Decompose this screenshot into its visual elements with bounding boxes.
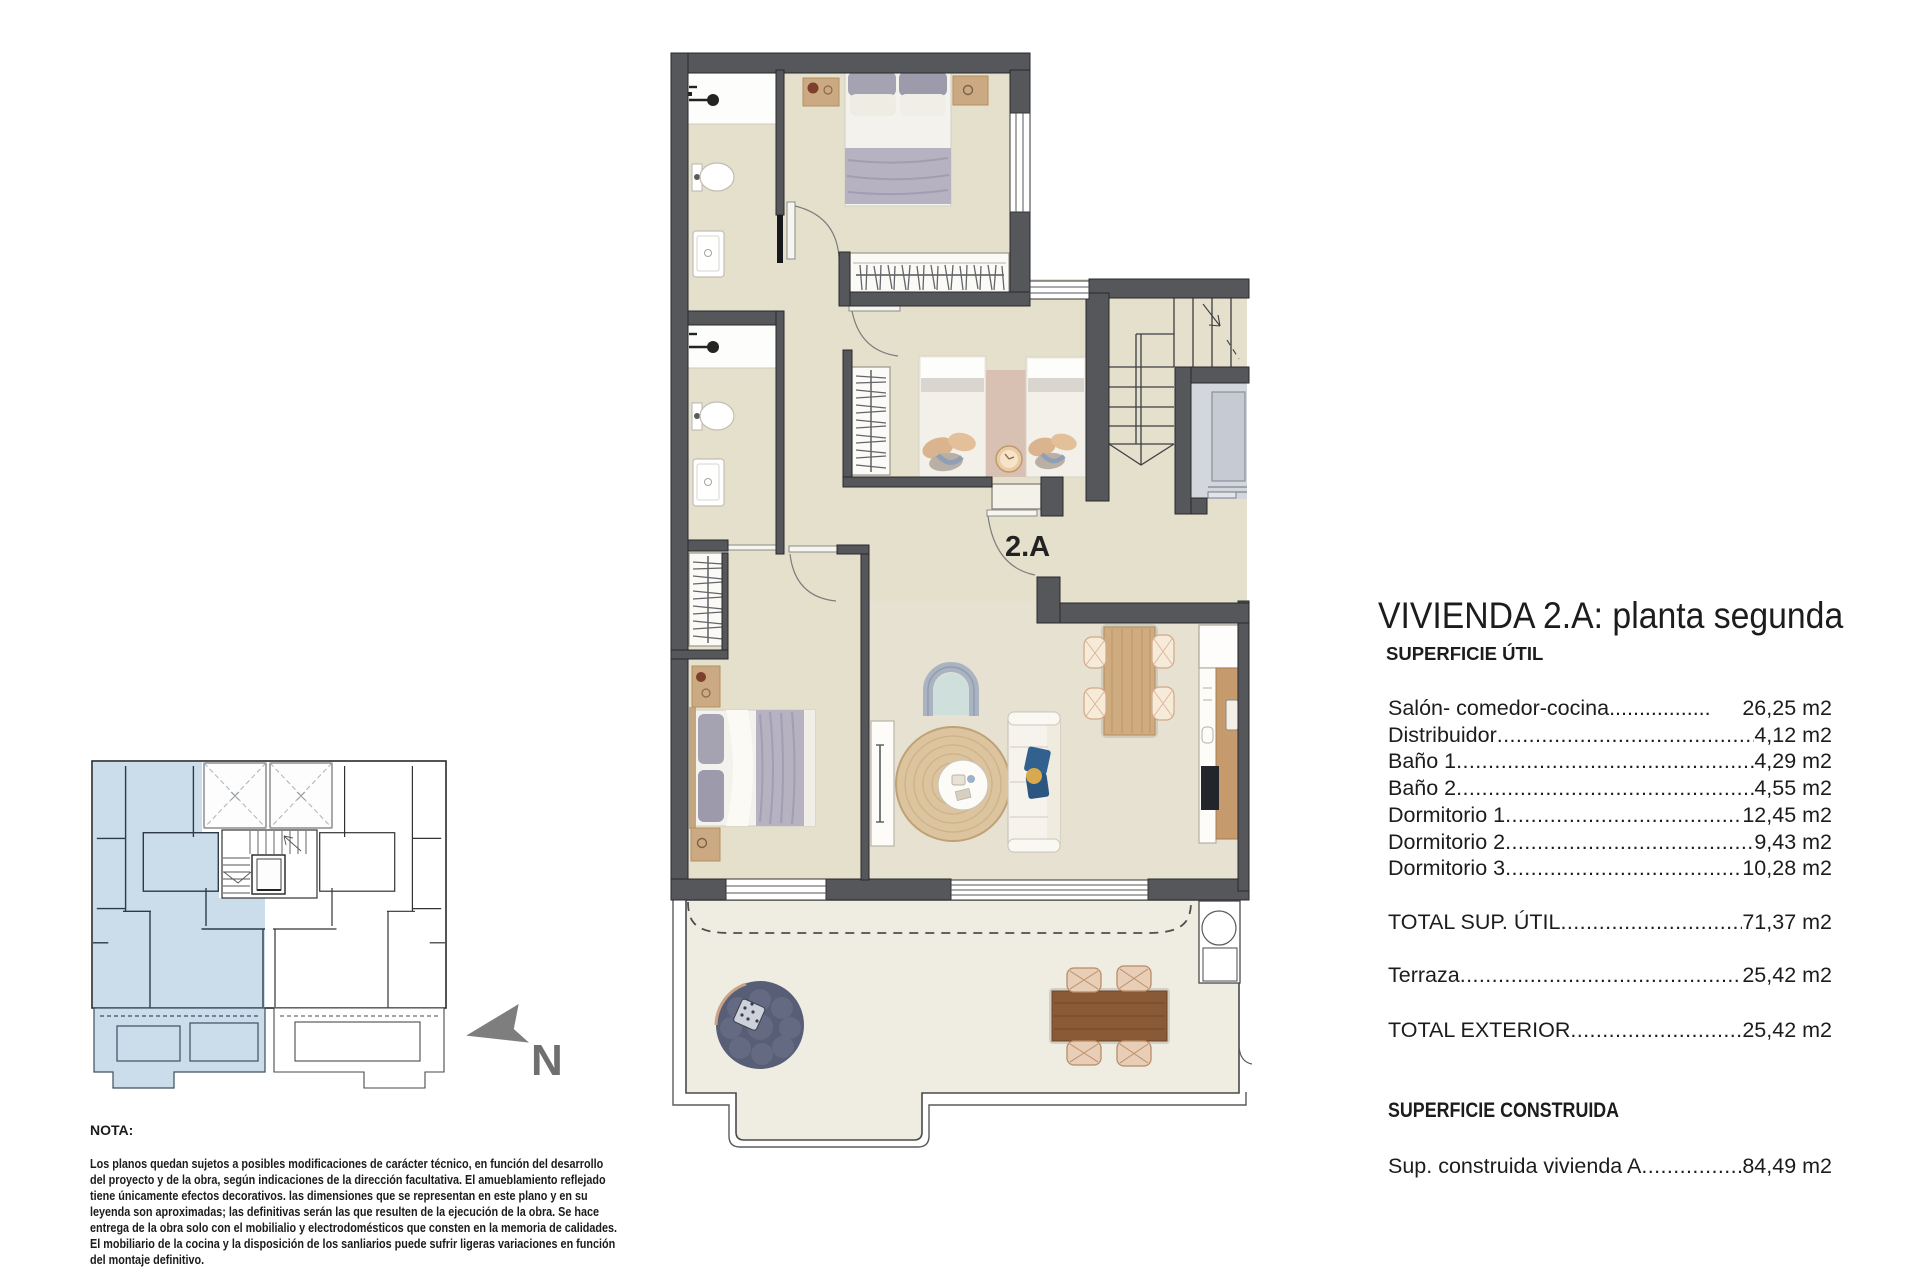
svg-text:N: N [531, 1036, 563, 1085]
svg-text:2.A: 2.A [1005, 531, 1050, 563]
